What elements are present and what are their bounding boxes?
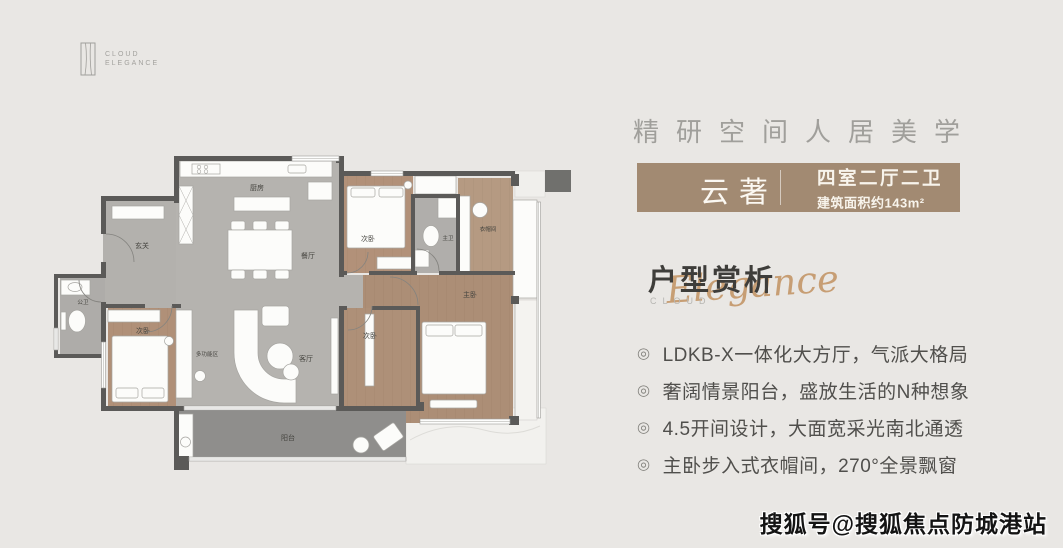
feature-text: 主卧步入式衣帽间，270°全景飘窗	[663, 451, 958, 478]
tv-cabinet	[331, 318, 338, 394]
side-table	[283, 364, 299, 380]
room-label-master: 主卧	[463, 290, 477, 299]
dining-table	[228, 221, 292, 279]
bed-top-wardrobe	[377, 257, 413, 269]
multi-stool	[195, 371, 206, 382]
pantry-cabinet	[179, 186, 193, 244]
logo-line2: ELEGANCE	[105, 59, 159, 68]
room-label-bath-public: 公卫	[77, 299, 89, 306]
room-label-living: 客厅	[299, 354, 313, 363]
bed-left	[112, 336, 174, 402]
feature-item: ◎ 主卧步入式衣帽间，270°全景飘窗	[637, 452, 969, 476]
cloak-tall-cabinet	[513, 200, 537, 298]
room-label-entry: 玄关	[135, 241, 149, 250]
entry-console	[112, 206, 164, 219]
project-name: 云著	[673, 169, 805, 211]
room-label-balcony: 阳台	[281, 433, 295, 442]
room-label-kitchen: 厨房	[250, 183, 264, 192]
section-eyebrow: CLOUD	[650, 296, 712, 306]
feature-text: 4.5开间设计，大面宽采光南北通透	[663, 414, 964, 441]
floor-plan: 玄关 厨房 餐厅 客厅 多功能区 阳台 次卧 次卧 次卧 主卧 公卫 主卫 衣帽…	[50, 140, 580, 490]
logo-line1: CLOUD	[105, 50, 159, 59]
bed-top	[347, 181, 412, 248]
master-wardrobe	[365, 314, 374, 386]
feature-list: ◎ LDKB-X一体化大方厅，气派大格局 ◎ 奢阔情景阳台，盛放生活的N种想象 …	[637, 341, 969, 489]
balcony-table	[353, 437, 369, 453]
feature-text: LDKB-X一体化大方厅，气派大格局	[663, 340, 969, 367]
watermark: 搜狐号@搜狐焦点防城港站	[760, 505, 1047, 539]
feature-bullet-icon: ◎	[637, 457, 651, 472]
bed-left-wardrobe	[108, 310, 160, 322]
project-badge: 云著 四室二厅二卫 建筑面积约143m²	[637, 163, 960, 212]
feature-bullet-icon: ◎	[637, 346, 651, 361]
room-label-cloak: 衣帽间	[480, 225, 497, 233]
room-label-bed-left: 次卧	[136, 326, 150, 335]
feature-bullet-icon: ◎	[637, 383, 651, 398]
multi-wardrobe	[176, 310, 192, 398]
cloak-stool	[473, 203, 488, 218]
badge-specs: 四室二厅二卫 建筑面积约143m²	[817, 164, 943, 211]
room-label-bed-right: 次卧	[363, 331, 377, 340]
room-label-dining: 餐厅	[301, 251, 315, 260]
section-title: 户型赏析	[648, 257, 776, 299]
bed-top-closet	[415, 176, 456, 194]
page: CLOUD ELEGANCE	[0, 0, 1063, 548]
room-label-bath-master: 主卫	[442, 234, 454, 242]
feature-bullet-icon: ◎	[637, 420, 651, 435]
room-label-bed-top: 次卧	[361, 234, 375, 243]
feature-item: ◎ LDKB-X一体化大方厅，气派大格局	[637, 341, 969, 365]
balcony-cabinet	[178, 414, 193, 458]
tagline: 精研空间人居美学	[633, 112, 977, 149]
room-label-multi: 多功能区	[196, 350, 219, 358]
brand-logo-text: CLOUD ELEGANCE	[105, 50, 159, 68]
feature-item: ◎ 4.5开间设计，大面宽采光南北通透	[637, 415, 969, 439]
kitchen-island	[234, 197, 290, 211]
feature-item: ◎ 奢阔情景阳台，盛放生活的N种想象	[637, 378, 969, 402]
brand-logo-icon	[80, 42, 96, 76]
balcony-washer	[181, 437, 191, 447]
badge-area: 建筑面积约143m²	[817, 192, 943, 211]
armchair	[262, 306, 289, 326]
brand-logo: CLOUD ELEGANCE	[80, 42, 159, 76]
badge-layout: 四室二厅二卫	[817, 164, 943, 190]
feature-text: 奢阔情景阳台，盛放生活的N种想象	[663, 377, 970, 404]
badge-divider	[780, 170, 781, 205]
